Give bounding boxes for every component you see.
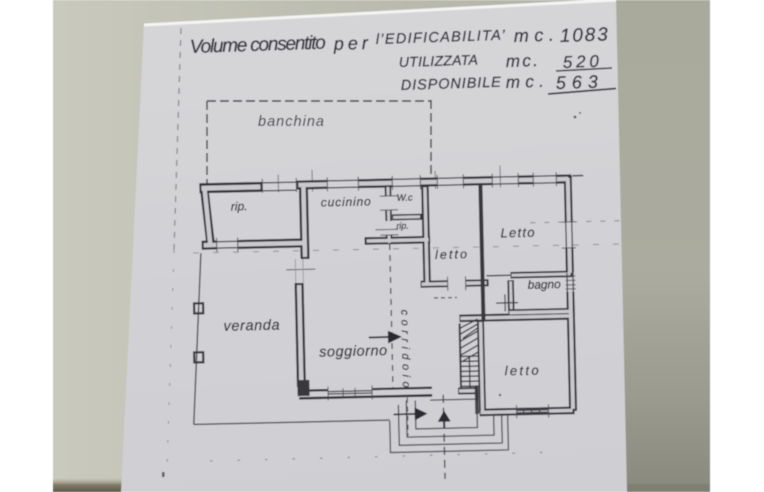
svg-text:UTILIZZATA: UTILIZZATA: [399, 51, 478, 70]
svg-text:corridoio: corridoio: [398, 310, 412, 388]
svg-text:bagno: bagno: [528, 277, 562, 292]
svg-text:cucinino: cucinino: [321, 194, 372, 209]
svg-text:W.c: W.c: [397, 192, 413, 203]
svg-text:letto: letto: [504, 363, 538, 379]
svg-text:per: per: [332, 33, 369, 54]
svg-text:mc.: mc.: [506, 51, 539, 71]
svg-text:Letto: Letto: [500, 225, 534, 241]
svg-text:DISPONIBILE: DISPONIBILE: [401, 75, 502, 94]
svg-text:soggiorno: soggiorno: [319, 343, 387, 361]
svg-text:rip.: rip.: [396, 221, 409, 231]
svg-text:veranda: veranda: [223, 318, 279, 335]
svg-text:letto: letto: [435, 247, 467, 262]
svg-text:banchina: banchina: [258, 114, 324, 130]
svg-text:rip.: rip.: [231, 199, 248, 213]
